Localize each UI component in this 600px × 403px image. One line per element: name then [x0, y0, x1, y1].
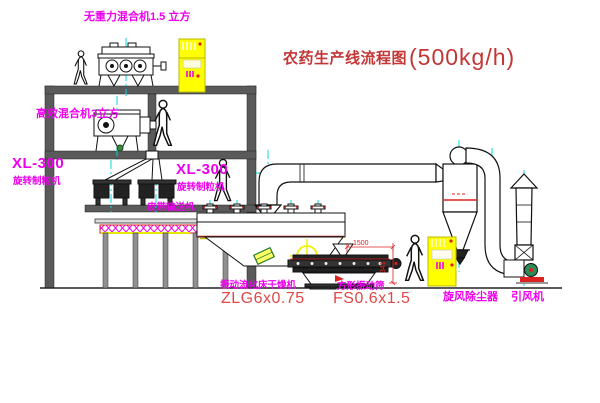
dimension-height-label: 341 — [380, 261, 387, 273]
conveyor-support-posts — [103, 233, 228, 288]
diagram-title-text: 农药生产线流程图 — [283, 47, 407, 68]
diagram-title: 农药生产线流程图 (500kg/h) — [283, 44, 515, 71]
person-on-roof — [74, 51, 87, 84]
person-ground — [406, 235, 424, 280]
label-granulator-left-name: 旋转制粒机 — [13, 177, 61, 187]
pesticide-production-line-diagram: 农药生产线流程图 (500kg/h) 无重力混合机1.5 立方 高效混合机3立方… — [0, 0, 600, 403]
label-granulator-right-model: XL-300 — [176, 162, 228, 177]
exhaust-duct — [255, 164, 443, 217]
label-granulator-left-model: XL-300 — [12, 156, 64, 171]
zero-gravity-mixer — [98, 43, 166, 86]
diagram-title-capacity: (500kg/h) — [409, 44, 515, 71]
fan-base — [520, 277, 544, 282]
building-roof-slab — [45, 86, 256, 94]
label-fan: 引风机 — [511, 292, 544, 303]
label-high-efficiency-mixer: 高效混合机3立方 — [36, 109, 119, 120]
label-dryer-model: ZLG6x0.75 — [221, 291, 305, 307]
dryer-discharge-funnel — [333, 244, 353, 256]
cyclone-inlet-taper — [436, 164, 443, 182]
indicator-dot — [198, 42, 201, 45]
label-belt-conveyor: 皮带输送机 — [147, 203, 195, 213]
induced-draft-fan — [504, 260, 548, 283]
label-sieve-model: FS0.6x1.5 — [333, 291, 410, 307]
label-zero-gravity-mixer: 无重力混合机1.5 立方 — [84, 12, 190, 23]
control-cabinet-top — [179, 39, 205, 92]
label-granulator-right-name: 旋转制粒机 — [177, 183, 225, 193]
stack-cap — [511, 174, 537, 188]
control-cabinet-right — [428, 237, 456, 286]
rotary-granulator-left — [93, 180, 131, 205]
dimension-width-label: 1500 — [353, 240, 369, 247]
exhaust-stack — [511, 174, 537, 260]
label-cyclone: 旋风除尘器 — [443, 292, 498, 303]
